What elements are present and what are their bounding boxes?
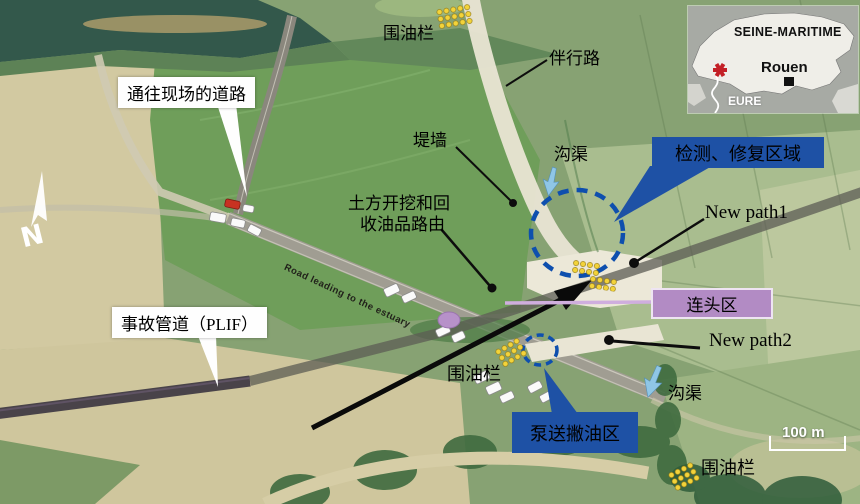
label-dike-wall: 堤墙 (413, 132, 447, 151)
label-oil-boom-top: 围油栏 (383, 25, 434, 44)
label-oil-boom-bottom: 围油栏 (701, 459, 755, 479)
label-oil-boom-mid: 围油栏 (447, 365, 501, 385)
label-excavation-route-line2: 收油品路由 (360, 216, 445, 235)
rouen-city-marker (784, 77, 794, 86)
access-road-callout: 通往现场的道路 (118, 77, 255, 108)
incident-site-map: 围油栏 伴行路 堤墙 沟渠 土方开挖和回 收油品路由 New path1 New… (0, 0, 860, 504)
sandbar (83, 15, 267, 33)
label-new-path2: New path2 (709, 330, 792, 352)
tie-in-connector-line (505, 302, 651, 303)
label-new-path1: New path1 (705, 202, 788, 224)
inset-city-label: Rouen (761, 59, 808, 76)
label-ditch-top: 沟渠 (554, 146, 588, 165)
inset-neighbor-region-label: EURE (728, 94, 761, 108)
tie-in-marker (438, 312, 460, 328)
inset-region-label: SEINE-MARITIME (734, 25, 842, 39)
seine-river (712, 76, 718, 113)
inspection-repair-area-box: 检测、修复区域 (652, 137, 824, 168)
label-parallel-road: 伴行路 (549, 50, 600, 69)
inset-map: SEINE-MARITIME Rouen EURE (688, 6, 858, 113)
pumping-skimming-area-box: 泵送撇油区 (512, 412, 638, 453)
incident-pipeline-callout: 事故管道（PLIF） (112, 307, 267, 338)
scale-bar-label: 100 m (782, 424, 825, 441)
label-excavation-route-line1: 土方开挖和回 (348, 195, 450, 214)
label-ditch-bottom: 沟渠 (668, 385, 702, 404)
tie-in-area-box: 连头区 (651, 288, 773, 319)
